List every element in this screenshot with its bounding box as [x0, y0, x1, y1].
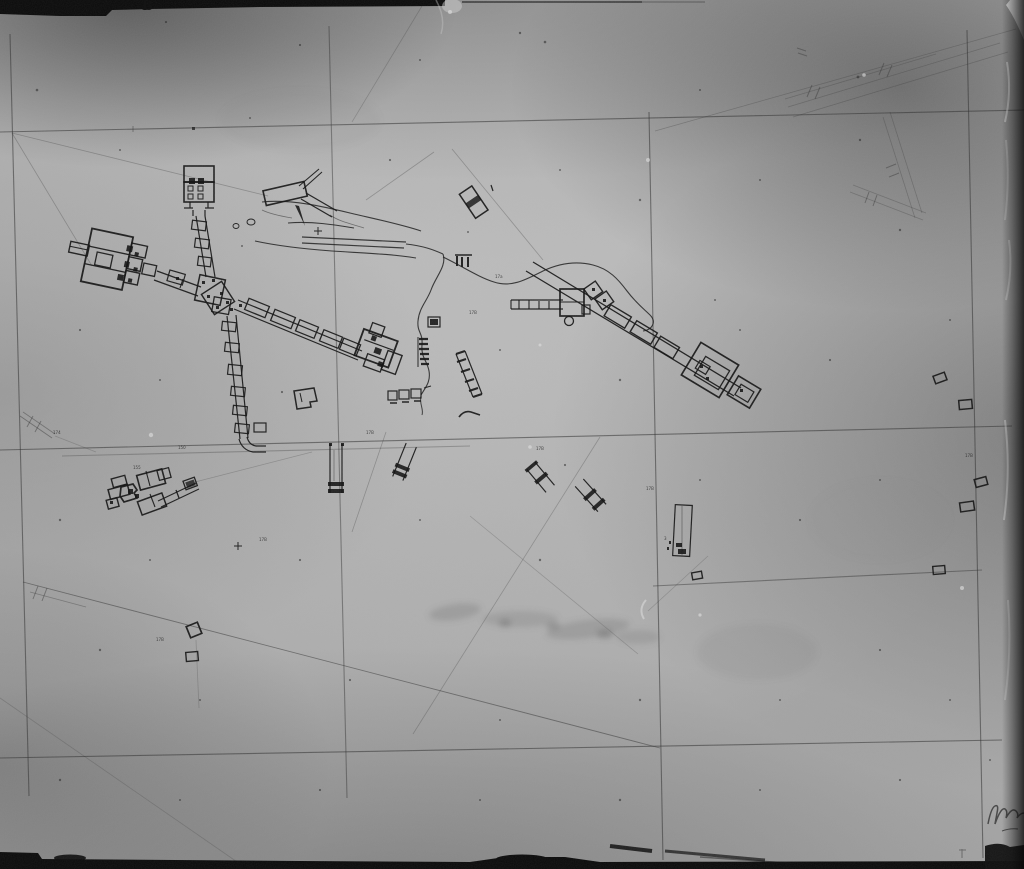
paper-right-edge-shadow	[1002, 0, 1024, 869]
sheet-corner-label: B	[142, 0, 154, 14]
film-grain-item	[0, 0, 1024, 869]
film-grain	[0, 0, 1024, 869]
site-plan-photograph: 17B17B17B17B17B17B15015517417a317B B	[0, 0, 1024, 869]
plan-drawing: 17B17B17B17B17B17B15015517417a317B	[0, 0, 1024, 869]
